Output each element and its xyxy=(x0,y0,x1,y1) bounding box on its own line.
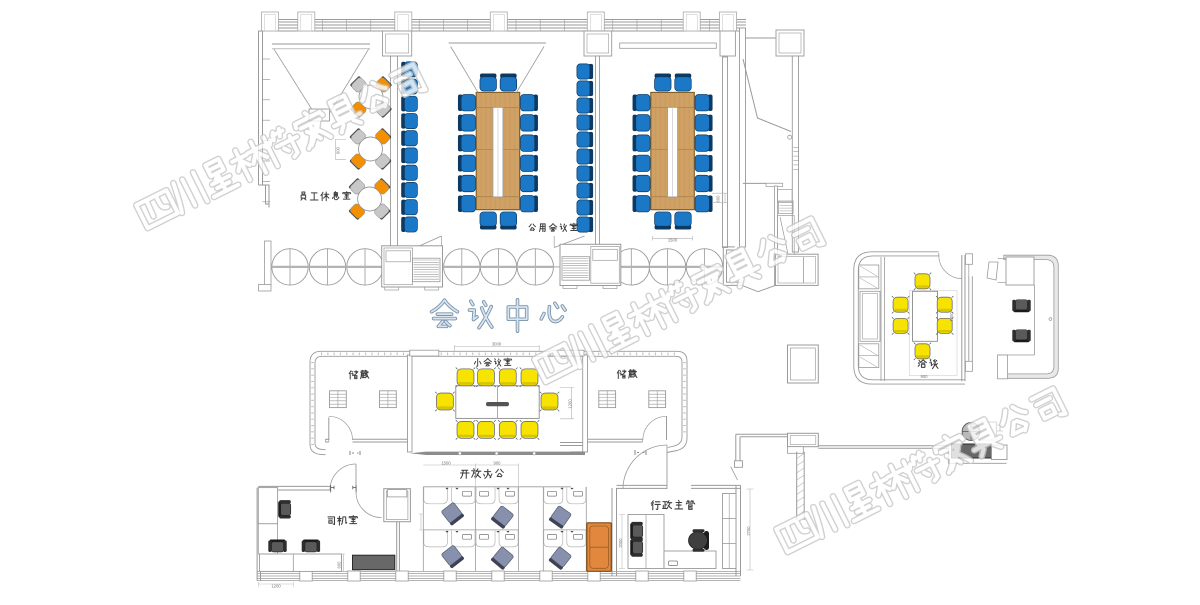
svg-text:3000: 3000 xyxy=(492,342,502,347)
svg-text:2700: 2700 xyxy=(746,526,751,536)
svg-text:1200: 1200 xyxy=(271,584,281,589)
svg-text:600: 600 xyxy=(716,195,721,203)
svg-text:600: 600 xyxy=(337,561,342,569)
svg-text:1200: 1200 xyxy=(568,399,573,409)
svg-text:900: 900 xyxy=(921,374,929,379)
svg-text:600: 600 xyxy=(336,146,341,154)
svg-text:900: 900 xyxy=(494,461,502,466)
svg-text:1500: 1500 xyxy=(668,238,678,243)
svg-text:1500: 1500 xyxy=(441,461,451,466)
svg-text:1800: 1800 xyxy=(949,312,954,322)
svg-text:2000: 2000 xyxy=(618,538,623,548)
